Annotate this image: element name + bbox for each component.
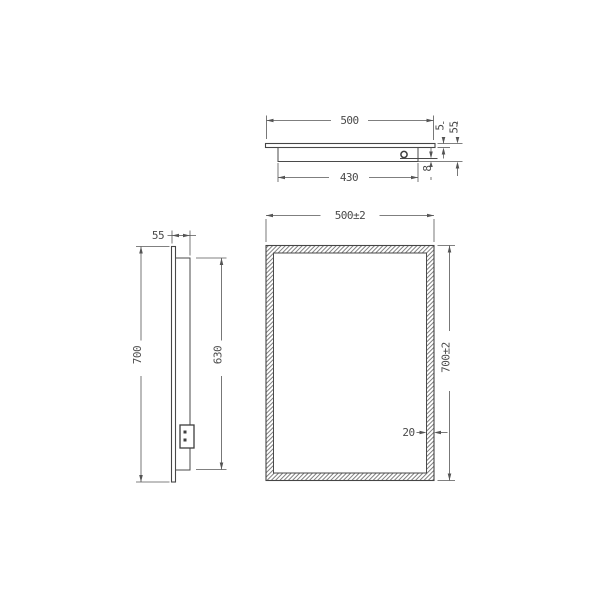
junction-box	[180, 425, 194, 448]
dim-label-side-height: 700	[131, 346, 144, 364]
dim-label-frame-width: 20	[402, 426, 414, 439]
drawing-canvas: 500 430 5 55 8	[0, 0, 600, 600]
dim-label-box-width: 430	[340, 171, 358, 184]
dim-label-front-width: 500±2	[335, 209, 366, 222]
dim-label-top-width: 500	[340, 114, 358, 127]
dim-label-box-height: 630	[212, 346, 225, 364]
dim-label-bracket-gap: 8	[421, 165, 434, 171]
dim-label-side-depth: 55	[152, 229, 164, 242]
junction-box-terminal	[184, 439, 187, 442]
mirror-technical-drawing: 500 430 5 55 8	[0, 0, 600, 600]
dim-label-glass-thickness: 5	[434, 124, 447, 130]
background	[0, 0, 600, 600]
junction-box-terminal	[184, 431, 187, 434]
dim-label-front-height: 700±2	[440, 342, 453, 373]
dim-label-total-depth: 55	[448, 121, 461, 133]
